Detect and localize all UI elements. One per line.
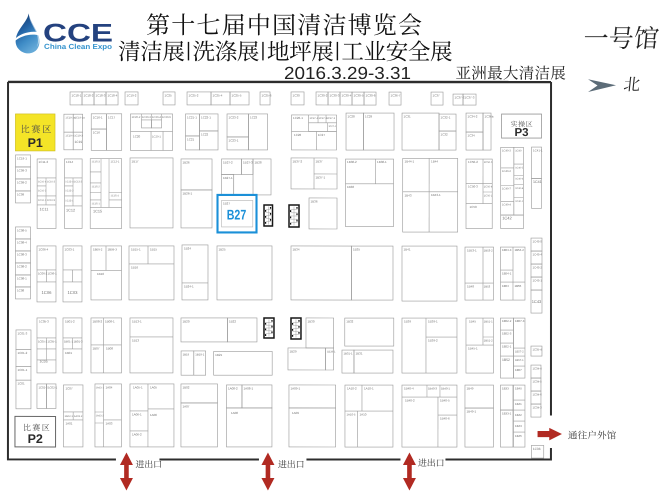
svg-text:1B25: 1B25 <box>218 247 225 251</box>
svg-text:1C16: 1C16 <box>93 131 101 135</box>
svg-text:1B31: 1B31 <box>355 352 362 356</box>
svg-text:1C18-3: 1C18-3 <box>96 93 106 97</box>
svg-text:1B19-1: 1B19-1 <box>195 352 204 356</box>
svg-text:1C36: 1C36 <box>533 447 541 451</box>
svg-text:B27: B27 <box>227 206 247 222</box>
svg-text:P2: P2 <box>28 432 43 446</box>
svg-text:1B45: 1B45 <box>515 434 522 438</box>
svg-text:1C19-1: 1C19-1 <box>17 156 27 160</box>
svg-text:1B26-1: 1B26-1 <box>183 191 193 195</box>
svg-text:1B37-2: 1B37-2 <box>293 159 303 163</box>
svg-text:1A10-5: 1A10-5 <box>346 413 355 417</box>
svg-text:1B54-3: 1B54-3 <box>502 248 512 252</box>
svg-text:1C22: 1C22 <box>201 132 209 136</box>
svg-text:1B38: 1B38 <box>347 185 354 189</box>
svg-text:1A01: 1A01 <box>65 421 72 425</box>
svg-text:1B37: 1B37 <box>316 159 323 163</box>
svg-text:1B08-2: 1B08-2 <box>92 319 102 323</box>
svg-text:1B01-2: 1B01-2 <box>65 319 75 323</box>
svg-text:1C11-3: 1C11-3 <box>39 160 49 164</box>
svg-text:1B39-2: 1B39-2 <box>428 339 438 343</box>
svg-text:1A07: 1A07 <box>182 404 189 408</box>
svg-text:1C25-2: 1C25-2 <box>189 93 199 97</box>
svg-text:1C08-5: 1C08-5 <box>17 228 27 232</box>
svg-text:1B49-1: 1B49-1 <box>466 410 476 414</box>
svg-text:1B31-1: 1B31-1 <box>343 352 352 356</box>
svg-text:1C30-5: 1C30-5 <box>354 94 364 98</box>
svg-text:1C16-1: 1C16-1 <box>93 115 103 119</box>
svg-text:1B19: 1B19 <box>183 352 190 356</box>
svg-text:1C40-2: 1C40-2 <box>502 170 511 173</box>
svg-text:1B40-4: 1B40-4 <box>404 387 414 391</box>
svg-text:1C01-1: 1C01-1 <box>17 368 27 372</box>
svg-text:1C27: 1C27 <box>318 133 326 137</box>
svg-text:1C18-4: 1C18-4 <box>108 93 118 97</box>
svg-text:1C50-4: 1C50-4 <box>484 186 493 189</box>
svg-text:1C43: 1C43 <box>532 299 542 304</box>
svg-text:1C03: 1C03 <box>67 290 78 295</box>
svg-text:P1: P1 <box>28 136 43 150</box>
svg-text:1C20-1: 1C20-1 <box>152 135 161 138</box>
svg-text:1C05-3: 1C05-3 <box>39 319 49 323</box>
svg-text:1B01-3: 1B01-3 <box>73 339 82 343</box>
svg-text:1B52-3: 1B52-3 <box>502 332 512 336</box>
svg-text:1B44-1: 1B44-1 <box>405 160 415 164</box>
svg-text:1C10-4: 1C10-4 <box>38 180 47 183</box>
svg-text:1B48: 1B48 <box>467 285 474 289</box>
svg-text:1C50-1: 1C50-1 <box>484 195 493 198</box>
svg-text:1C23-1: 1C23-1 <box>229 138 239 142</box>
svg-text:1C10-5: 1C10-5 <box>47 199 56 202</box>
svg-text:1B45-1: 1B45-1 <box>468 347 478 351</box>
svg-text:1C14: 1C14 <box>66 160 74 164</box>
svg-text:1B07: 1B07 <box>92 346 99 350</box>
svg-text:1C40: 1C40 <box>515 149 522 152</box>
svg-text:1A03-1: 1A03-1 <box>96 386 105 389</box>
svg-text:1B08-1: 1B08-1 <box>105 319 115 323</box>
svg-text:1C26-1: 1C26-1 <box>293 116 303 120</box>
svg-text:1B40-6: 1B40-6 <box>440 417 450 421</box>
svg-text:1B27: 1B27 <box>223 201 230 205</box>
svg-text:1B29-1: 1B29-1 <box>327 350 336 353</box>
svg-text:1C28: 1C28 <box>348 115 356 119</box>
svg-text:1B41: 1B41 <box>515 402 522 406</box>
svg-text:1A05-1: 1A05-1 <box>133 385 143 389</box>
svg-text:1B26: 1B26 <box>183 160 190 164</box>
svg-text:1B13-1: 1B13-1 <box>132 319 142 323</box>
svg-text:1C19-1a: 1C19-1a <box>75 117 86 120</box>
svg-text:1C07: 1C07 <box>65 386 73 390</box>
svg-text:1C50-2: 1C50-2 <box>468 160 478 164</box>
svg-text:1C08: 1C08 <box>17 288 25 292</box>
svg-text:1C05-1: 1C05-1 <box>47 339 57 343</box>
svg-text:1B32: 1B32 <box>346 320 353 324</box>
svg-text:1B39-1: 1B39-1 <box>428 320 438 324</box>
svg-text:1B28: 1B28 <box>255 160 262 164</box>
svg-text:1A08-2: 1A08-2 <box>228 386 238 390</box>
svg-text:1C43-5: 1C43-5 <box>533 240 543 244</box>
svg-text:1C15-1: 1C15-1 <box>92 202 101 205</box>
svg-text:1C37: 1C37 <box>433 94 441 98</box>
svg-text:1C34-4: 1C34-4 <box>532 367 542 371</box>
svg-text:1C36a: 1C36a <box>485 115 494 119</box>
svg-text:1C15: 1C15 <box>93 209 102 213</box>
svg-text:1B17: 1B17 <box>132 159 139 163</box>
svg-text:1C09: 1C09 <box>17 192 25 196</box>
svg-text:1C40-5: 1C40-5 <box>515 167 524 170</box>
svg-text:1C18-2: 1C18-2 <box>84 93 94 97</box>
svg-text:1B44: 1B44 <box>431 160 438 164</box>
svg-text:1B02: 1B02 <box>182 385 189 389</box>
svg-text:2016.3.29-3.31: 2016.3.29-3.31 <box>284 63 411 83</box>
svg-text:1B15-1: 1B15-1 <box>131 247 141 251</box>
svg-text:1C27-3: 1C27-3 <box>327 117 336 120</box>
svg-text:1C01: 1C01 <box>17 382 25 386</box>
svg-text:1B08: 1B08 <box>106 346 113 350</box>
svg-text:1B27-1: 1B27-1 <box>223 176 233 180</box>
svg-text:1A06: 1A06 <box>150 413 157 417</box>
svg-text:1C10-2: 1C10-2 <box>38 189 47 192</box>
svg-text:1A06-1: 1A06-1 <box>132 412 142 416</box>
svg-text:1B29: 1B29 <box>289 349 296 353</box>
svg-text:1B40-3: 1B40-3 <box>428 387 437 391</box>
svg-text:1C13-1: 1C13-1 <box>111 160 120 163</box>
svg-text:1C13-3: 1C13-3 <box>74 180 83 183</box>
svg-text:1B27-3: 1B27-3 <box>243 160 253 164</box>
svg-text:1A06-2: 1A06-2 <box>132 432 142 436</box>
svg-text:1B34: 1B34 <box>292 247 299 251</box>
svg-text:1B38-2: 1B38-2 <box>347 160 357 164</box>
svg-text:1C05: 1C05 <box>39 359 47 363</box>
svg-text:1C20-5: 1C20-5 <box>162 116 171 119</box>
svg-text:1C25-6: 1C25-6 <box>262 93 272 97</box>
svg-text:1C06-4: 1C06-4 <box>38 247 48 251</box>
svg-text:1C08-1: 1C08-1 <box>17 276 27 280</box>
svg-text:1C27-4: 1C27-4 <box>310 117 319 120</box>
svg-text:1C22-1: 1C22-1 <box>201 115 211 119</box>
svg-text:1C50-5: 1C50-5 <box>484 161 493 164</box>
svg-text:1C13-2: 1C13-2 <box>65 189 74 192</box>
svg-text:1C08-3: 1C08-3 <box>17 252 27 256</box>
svg-text:1C02-1: 1C02-1 <box>48 385 58 389</box>
svg-text:1C34: 1C34 <box>468 134 476 138</box>
svg-text:1B39: 1B39 <box>404 320 411 324</box>
svg-text:1A03: 1A03 <box>105 421 112 425</box>
svg-text:1A02-1: 1A02-1 <box>64 415 73 418</box>
svg-text:1C42: 1C42 <box>502 216 512 221</box>
svg-text:1C30-3: 1C30-3 <box>330 93 340 97</box>
svg-text:1C09-2: 1C09-2 <box>17 180 27 184</box>
svg-text:1B57: 1B57 <box>515 368 522 372</box>
svg-text:1C20-4: 1C20-4 <box>152 116 161 119</box>
svg-text:China Clean Expo: China Clean Expo <box>44 42 113 51</box>
svg-text:1B10: 1B10 <box>97 272 104 276</box>
svg-text:1C31: 1C31 <box>404 115 412 119</box>
svg-text:1C40-1: 1C40-1 <box>515 200 524 203</box>
svg-text:1C01-3: 1C01-3 <box>17 331 27 335</box>
svg-text:1C30-4: 1C30-4 <box>342 94 352 98</box>
svg-text:1C15-2: 1C15-2 <box>92 185 101 188</box>
svg-text:1B53: 1B53 <box>484 285 491 289</box>
svg-text:1C30-6: 1C30-6 <box>366 94 376 98</box>
svg-text:1C34-3: 1C34-3 <box>532 406 542 410</box>
svg-text:1A05: 1A05 <box>150 385 157 389</box>
svg-text:1B53-2: 1B53-2 <box>484 249 493 253</box>
svg-text:1B40-1: 1B40-1 <box>441 387 450 391</box>
svg-text:1B45: 1B45 <box>469 320 476 324</box>
svg-text:1C26: 1C26 <box>294 133 302 137</box>
svg-text:1C25: 1C25 <box>165 93 173 97</box>
svg-text:1C36-7: 1C36-7 <box>391 94 401 98</box>
svg-text:1C19-2: 1C19-2 <box>127 93 137 97</box>
svg-text:1C15-4: 1C15-4 <box>111 194 120 197</box>
svg-text:1B16: 1B16 <box>131 265 138 269</box>
svg-text:1B01: 1B01 <box>65 351 72 355</box>
svg-text:1B53-1: 1B53-1 <box>467 249 477 253</box>
svg-text:1B49: 1B49 <box>466 387 473 391</box>
svg-text:1B36: 1B36 <box>311 199 318 203</box>
svg-text:1B24: 1B24 <box>184 246 191 250</box>
svg-text:1C13-1: 1C13-1 <box>65 199 74 202</box>
svg-text:1B43: 1B43 <box>515 424 522 428</box>
svg-text:1C17: 1C17 <box>108 115 116 119</box>
svg-text:1C37-3: 1C37-3 <box>465 96 475 100</box>
svg-text:1B52: 1B52 <box>502 358 510 362</box>
svg-text:1C08-2: 1C08-2 <box>17 264 27 268</box>
svg-text:1B30: 1B30 <box>307 319 314 323</box>
svg-text:1A04: 1A04 <box>105 385 112 389</box>
svg-text:1C29: 1C29 <box>365 115 373 119</box>
svg-text:1B22: 1B22 <box>229 319 236 323</box>
svg-text:1C06-2: 1C06-2 <box>38 271 48 275</box>
svg-text:1B09-2: 1B09-2 <box>93 247 103 251</box>
svg-text:1B20: 1B20 <box>182 319 189 323</box>
svg-text:1C21: 1C21 <box>187 137 195 141</box>
svg-text:1C11: 1C11 <box>40 207 49 211</box>
svg-text:1B38-1: 1B38-1 <box>377 160 387 164</box>
svg-text:1B09-3: 1B09-3 <box>107 247 117 251</box>
svg-text:1C50-3: 1C50-3 <box>468 185 478 189</box>
svg-text:1B43-1: 1B43-1 <box>431 193 441 197</box>
svg-text:1C21-1: 1C21-1 <box>187 115 197 119</box>
svg-text:1C40-7: 1C40-7 <box>502 187 511 190</box>
svg-text:1C50: 1C50 <box>470 205 478 209</box>
svg-text:1C43-4: 1C43-4 <box>532 253 542 257</box>
svg-text:1C12: 1C12 <box>66 208 75 212</box>
svg-text:1B54: 1B54 <box>502 284 509 288</box>
svg-text:1C23: 1C23 <box>250 115 258 119</box>
svg-text:1C43-1: 1C43-1 <box>532 279 542 283</box>
svg-text:1C03-1: 1C03-1 <box>64 247 74 251</box>
svg-text:1B37-1: 1B37-1 <box>316 175 326 179</box>
svg-text:1C25-5: 1C25-5 <box>232 93 242 97</box>
svg-text:1B33-1: 1B33-1 <box>502 412 512 416</box>
svg-text:1C20: 1C20 <box>133 134 141 138</box>
svg-text:1C01-2: 1C01-2 <box>17 351 27 355</box>
svg-text:1B01-1: 1B01-1 <box>64 339 73 343</box>
svg-text:1C27-1: 1C27-1 <box>328 125 337 128</box>
svg-text:1A09-1: 1A09-1 <box>290 386 300 390</box>
svg-text:1A10-1: 1A10-1 <box>364 387 374 391</box>
svg-text:1A10: 1A10 <box>359 413 366 417</box>
svg-text:1A08: 1A08 <box>231 411 238 415</box>
svg-text:1B51-2: 1B51-2 <box>484 339 493 343</box>
svg-text:1B51-1: 1B51-1 <box>484 320 493 324</box>
svg-text:1B54-1: 1B54-1 <box>502 272 512 276</box>
svg-text:1B40: 1B40 <box>515 387 522 391</box>
svg-text:1B42: 1B42 <box>515 413 522 417</box>
svg-text:1B40-2: 1B40-2 <box>405 399 415 403</box>
svg-text:1C10-3: 1C10-3 <box>47 180 56 183</box>
svg-text:1B13: 1B13 <box>132 338 139 342</box>
svg-text:1C08-4: 1C08-4 <box>17 240 27 244</box>
svg-text:1C05-2: 1C05-2 <box>38 339 48 343</box>
svg-text:1A10-2: 1A10-2 <box>347 387 357 391</box>
svg-text:1C19: 1C19 <box>75 140 83 144</box>
svg-text:1C35-4: 1C35-4 <box>532 348 542 352</box>
svg-text:1B27-2: 1B27-2 <box>223 160 233 164</box>
svg-text:1C09-3: 1C09-3 <box>17 168 27 172</box>
svg-text:1A02-2: 1A02-2 <box>74 415 83 418</box>
svg-text:1C10-1: 1C10-1 <box>38 199 47 202</box>
svg-text:1C34-6: 1C34-6 <box>532 393 542 397</box>
svg-text:1C41-1: 1C41-1 <box>533 149 543 153</box>
svg-text:1C18-1: 1C18-1 <box>72 93 82 97</box>
svg-text:1C25-4: 1C25-4 <box>213 93 223 97</box>
svg-text:1A03-2: 1A03-2 <box>96 414 105 417</box>
svg-text:1C34-5: 1C34-5 <box>532 380 542 384</box>
svg-text:1B24-1: 1B24-1 <box>184 284 194 288</box>
svg-text:1C30-2: 1C30-2 <box>318 93 328 97</box>
svg-text:1C34-2: 1C34-2 <box>468 115 478 119</box>
svg-text:1C20-2: 1C20-2 <box>132 116 141 119</box>
svg-text:1C15-3: 1C15-3 <box>92 160 101 163</box>
svg-text:1B21: 1B21 <box>215 353 222 357</box>
svg-text:1B54-2: 1B54-2 <box>514 248 524 252</box>
svg-text:1C19-3: 1C19-3 <box>74 134 83 137</box>
svg-text:1C23-2: 1C23-2 <box>229 115 239 119</box>
svg-text:1A08-1: 1A08-1 <box>243 386 253 390</box>
svg-text:1C43-2: 1C43-2 <box>532 266 542 270</box>
svg-text:1B15: 1B15 <box>150 247 157 251</box>
svg-text:1B55: 1B55 <box>514 284 521 288</box>
svg-text:1C40-4: 1C40-4 <box>502 204 511 207</box>
svg-text:1B43: 1B43 <box>405 194 412 198</box>
svg-text:1B57-3: 1B57-3 <box>515 319 525 323</box>
svg-text:1A09: 1A09 <box>292 411 299 415</box>
svg-text:1C06: 1C06 <box>41 290 52 295</box>
svg-text:1C32-1: 1C32-1 <box>441 116 451 120</box>
svg-text:1C40-8: 1C40-8 <box>515 187 524 190</box>
svg-text:1B35: 1B35 <box>353 248 360 252</box>
svg-text:1C06-1: 1C06-1 <box>47 271 57 275</box>
svg-text:1B41: 1B41 <box>403 248 410 252</box>
svg-text:1C40-3: 1C40-3 <box>502 149 511 152</box>
svg-text:1B57-1: 1B57-1 <box>515 359 524 362</box>
svg-text:1C32: 1C32 <box>441 133 449 137</box>
svg-text:1B52-1: 1B52-1 <box>502 345 512 349</box>
svg-text:1B33: 1B33 <box>502 387 509 391</box>
svg-text:1C41: 1C41 <box>533 180 542 184</box>
svg-text:1C20-3: 1C20-3 <box>142 116 151 119</box>
svg-text:P3: P3 <box>514 127 528 139</box>
svg-text:1B57-2: 1B57-2 <box>515 351 524 354</box>
svg-text:1C13-4: 1C13-4 <box>65 180 74 183</box>
svg-text:1B52-2: 1B52-2 <box>502 319 512 323</box>
svg-text:1B40-5: 1B40-5 <box>440 399 450 403</box>
svg-text:1C40-6: 1C40-6 <box>515 178 524 181</box>
svg-text:1C30: 1C30 <box>293 93 301 97</box>
